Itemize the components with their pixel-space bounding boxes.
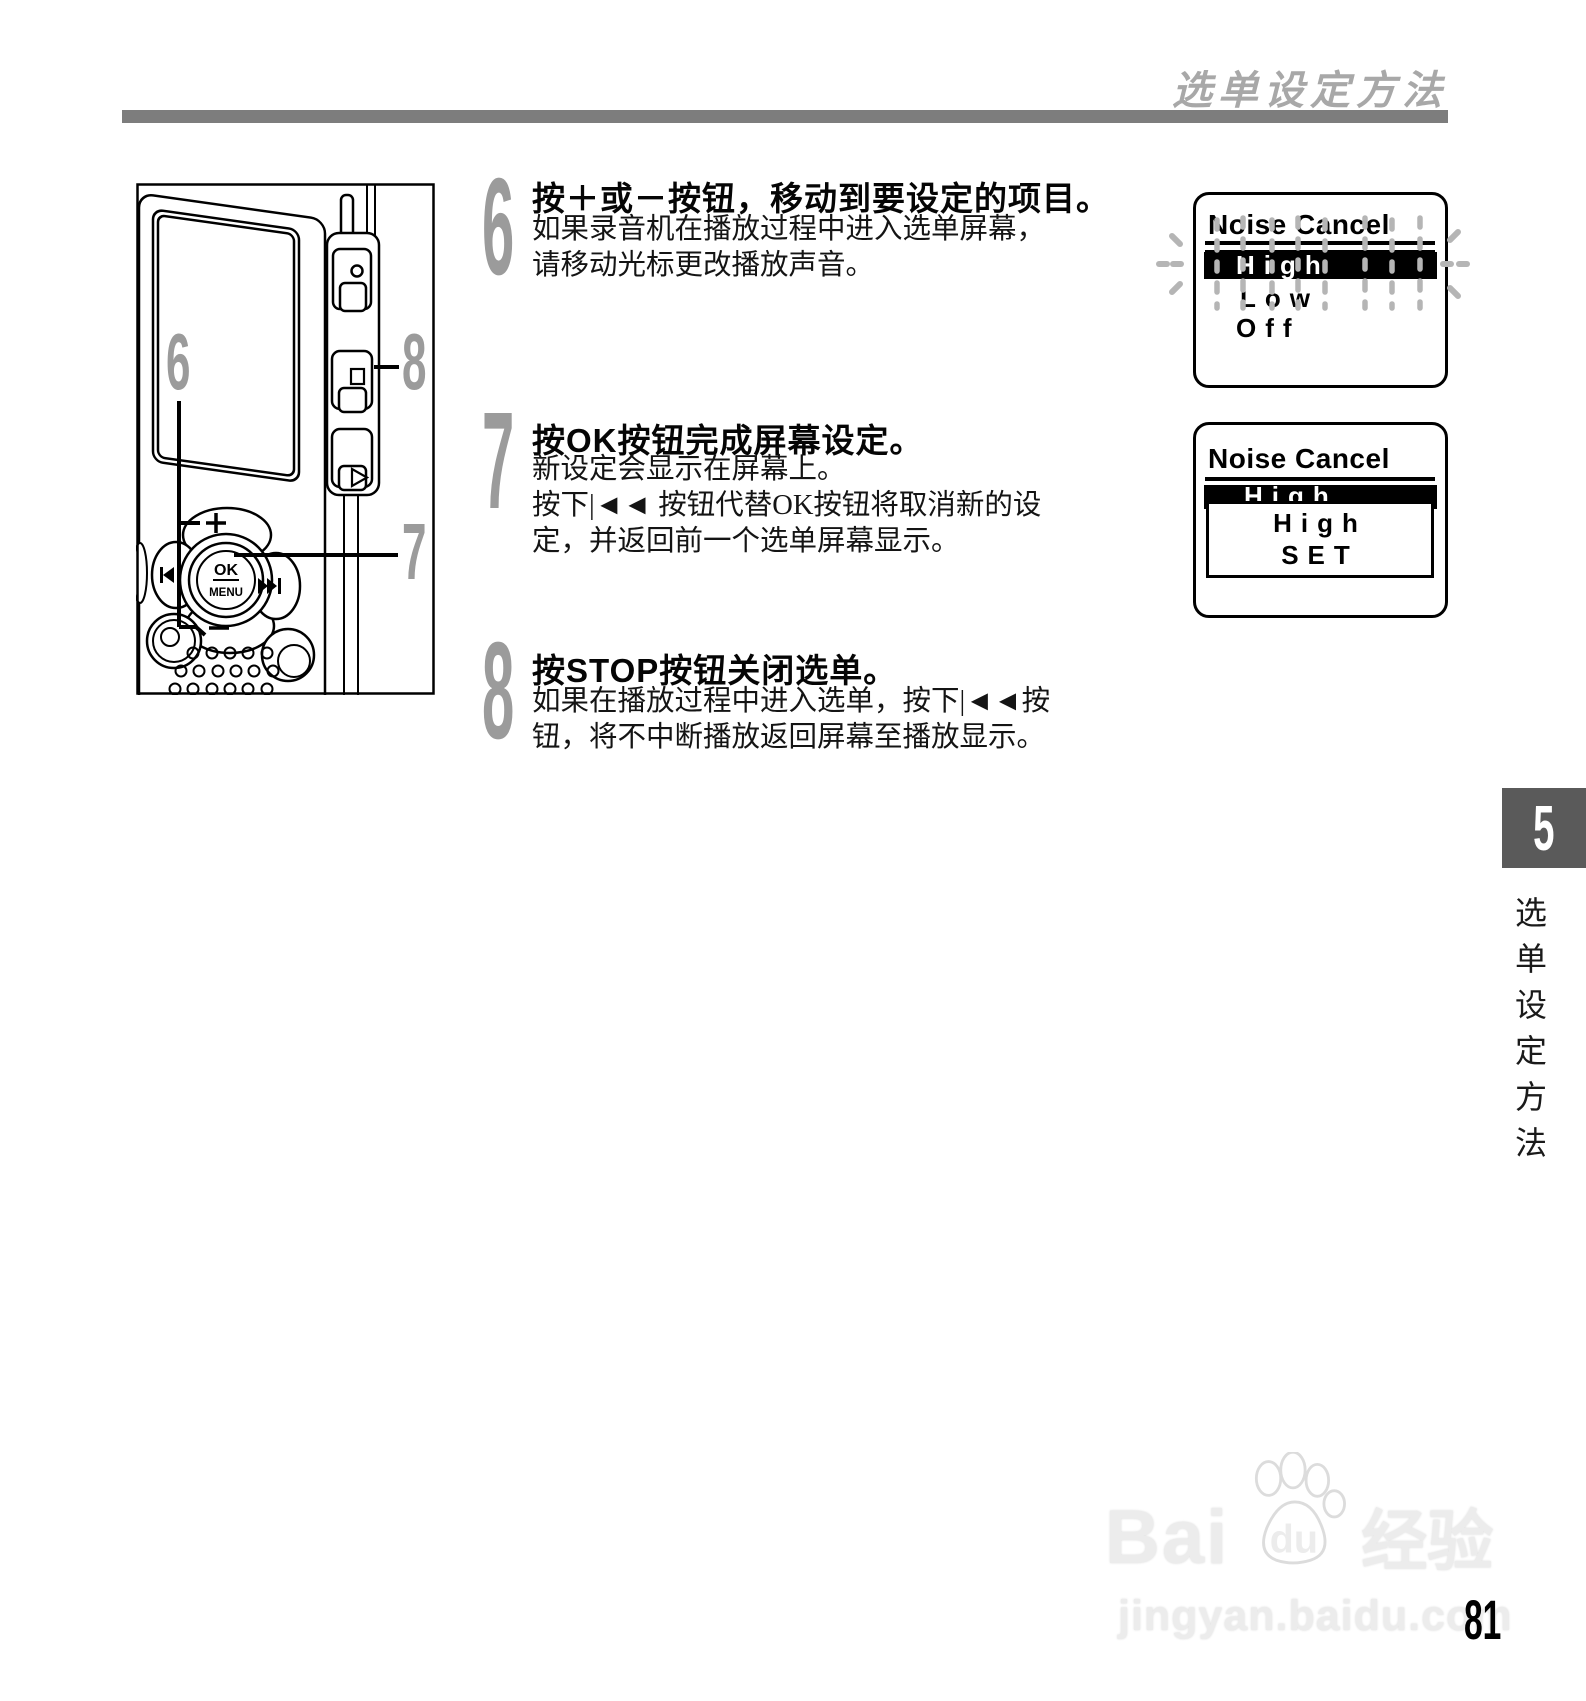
- step-8-body: 如果在播放过程中进入选单，按下|◄◄按 钮，将不中断播放返回屏幕至播放显示。: [532, 684, 1050, 756]
- step-7-line-3: 定，并返回前一个选单屏幕显示。: [532, 524, 1041, 560]
- step-7-body: 新设定会显示在屏幕上。 按下|◄◄ 按钮代替OK按钮将取消新的设 定，并返回前一…: [532, 452, 1041, 560]
- record-icon: [352, 266, 363, 277]
- device-illustration: OK MENU: [136, 183, 435, 695]
- popup-value: High: [1209, 508, 1431, 539]
- lcd-confirm-title: Noise Cancel: [1208, 443, 1390, 475]
- step-8-line-1: 如果在播放过程中进入选单，按下|◄◄按: [532, 684, 1050, 720]
- chapter-number: 5: [1533, 791, 1554, 865]
- record-button: [147, 614, 201, 668]
- callout-8: 8: [402, 317, 426, 406]
- watermark-brand: Bai: [1105, 1500, 1229, 1576]
- menu-button-label: MENU: [209, 587, 243, 599]
- step-6-line-1: 如果录音机在播放过程中进入选单屏幕，: [532, 212, 1045, 248]
- page-number: 81: [1464, 1592, 1501, 1648]
- watermark-brand2: du: [1270, 1518, 1318, 1562]
- popup-status: SET: [1209, 540, 1431, 571]
- step-8-line-2: 钮，将不中断播放返回屏幕至播放显示。: [532, 720, 1050, 756]
- lcd-item: Low: [1240, 283, 1319, 314]
- lcd-screen-confirm: Noise Cancel High High SET: [1193, 422, 1448, 618]
- remote-strip: [327, 195, 379, 495]
- step-6-number: 6: [482, 158, 514, 296]
- step-6-line-2: 请移动光标更改播放声音。: [532, 248, 1045, 284]
- round-button: [262, 629, 314, 681]
- step-6-body: 如果录音机在播放过程中进入选单屏幕， 请移动光标更改播放声音。: [532, 212, 1045, 284]
- paw-icon: du: [1231, 1452, 1353, 1580]
- lcd-item: Off: [1236, 313, 1301, 344]
- lcd-item-selected: High: [1204, 252, 1437, 279]
- stop-icon: [351, 369, 364, 384]
- ok-button-label: OK: [214, 562, 238, 579]
- watermark-suffix: 经验: [1361, 1507, 1493, 1576]
- recorder-drawing: OK MENU: [136, 183, 435, 695]
- lcd-screen-menu: Noise Cancel High Low Off: [1193, 192, 1448, 388]
- plug: [341, 195, 353, 237]
- step-7-number: 7: [482, 392, 514, 530]
- manual-page: 选单设定方法: [0, 0, 1586, 1701]
- page-title: 选单设定方法: [1172, 58, 1448, 116]
- header-divider: [122, 110, 1448, 123]
- callout-7: 7: [402, 507, 426, 596]
- chapter-vertical-label: 选单设定方法: [1506, 896, 1552, 1172]
- step-7-line-2: 按下|◄◄ 按钮代替OK按钮将取消新的设: [532, 488, 1041, 524]
- watermark-logo: Bai du 经验: [1105, 1452, 1493, 1576]
- step-7-line-1: 新设定会显示在屏幕上。: [532, 452, 1041, 488]
- lcd-menu-title: Noise Cancel: [1208, 209, 1390, 241]
- chapter-tab: 5: [1502, 788, 1586, 868]
- callout-6: 6: [166, 317, 190, 406]
- lcd-set-popup: High SET: [1206, 501, 1434, 578]
- watermark-url: jingyan.baidu.com: [1118, 1592, 1513, 1641]
- step-8-number: 8: [482, 622, 514, 760]
